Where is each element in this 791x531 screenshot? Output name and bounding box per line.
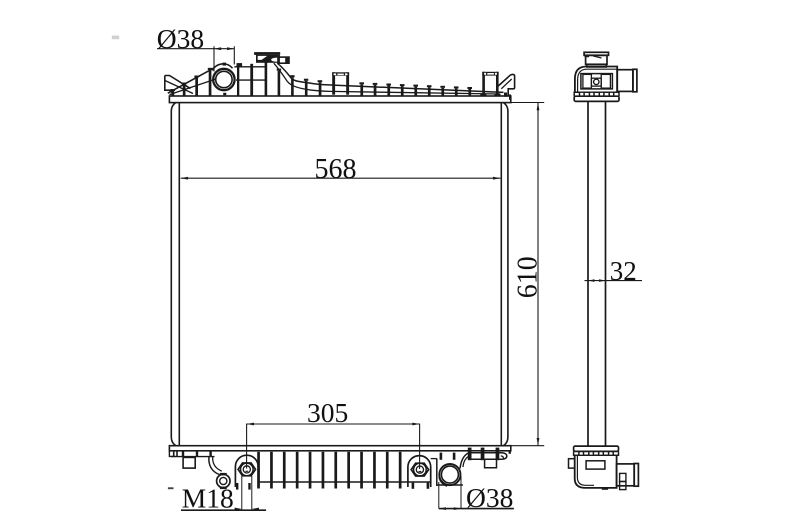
svg-text:32: 32 [610, 256, 637, 286]
svg-text:Ø38: Ø38 [157, 23, 204, 54]
svg-text:568: 568 [315, 154, 357, 185]
svg-text:610: 610 [513, 256, 544, 298]
svg-text:Ø38: Ø38 [466, 482, 513, 513]
svg-text:M18: M18 [182, 483, 234, 514]
svg-text:305: 305 [307, 397, 348, 428]
